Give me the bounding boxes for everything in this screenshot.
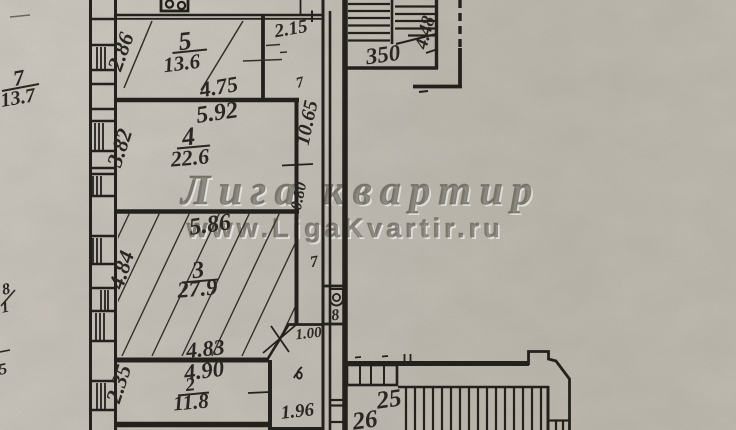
svg-text:22.6: 22.6 [169, 143, 211, 171]
svg-text:Лига квартир: Лига квартир [179, 168, 540, 214]
svg-text:350: 350 [363, 40, 402, 70]
svg-text:1.96: 1.96 [280, 399, 316, 423]
svg-text:26: 26 [350, 405, 380, 430]
svg-text:13.6: 13.6 [162, 49, 202, 77]
svg-text:27.9: 27.9 [175, 274, 219, 303]
svg-text:11.8: 11.8 [172, 388, 210, 415]
svg-text:25: 25 [374, 384, 404, 414]
svg-text:1.00: 1.00 [295, 325, 323, 344]
